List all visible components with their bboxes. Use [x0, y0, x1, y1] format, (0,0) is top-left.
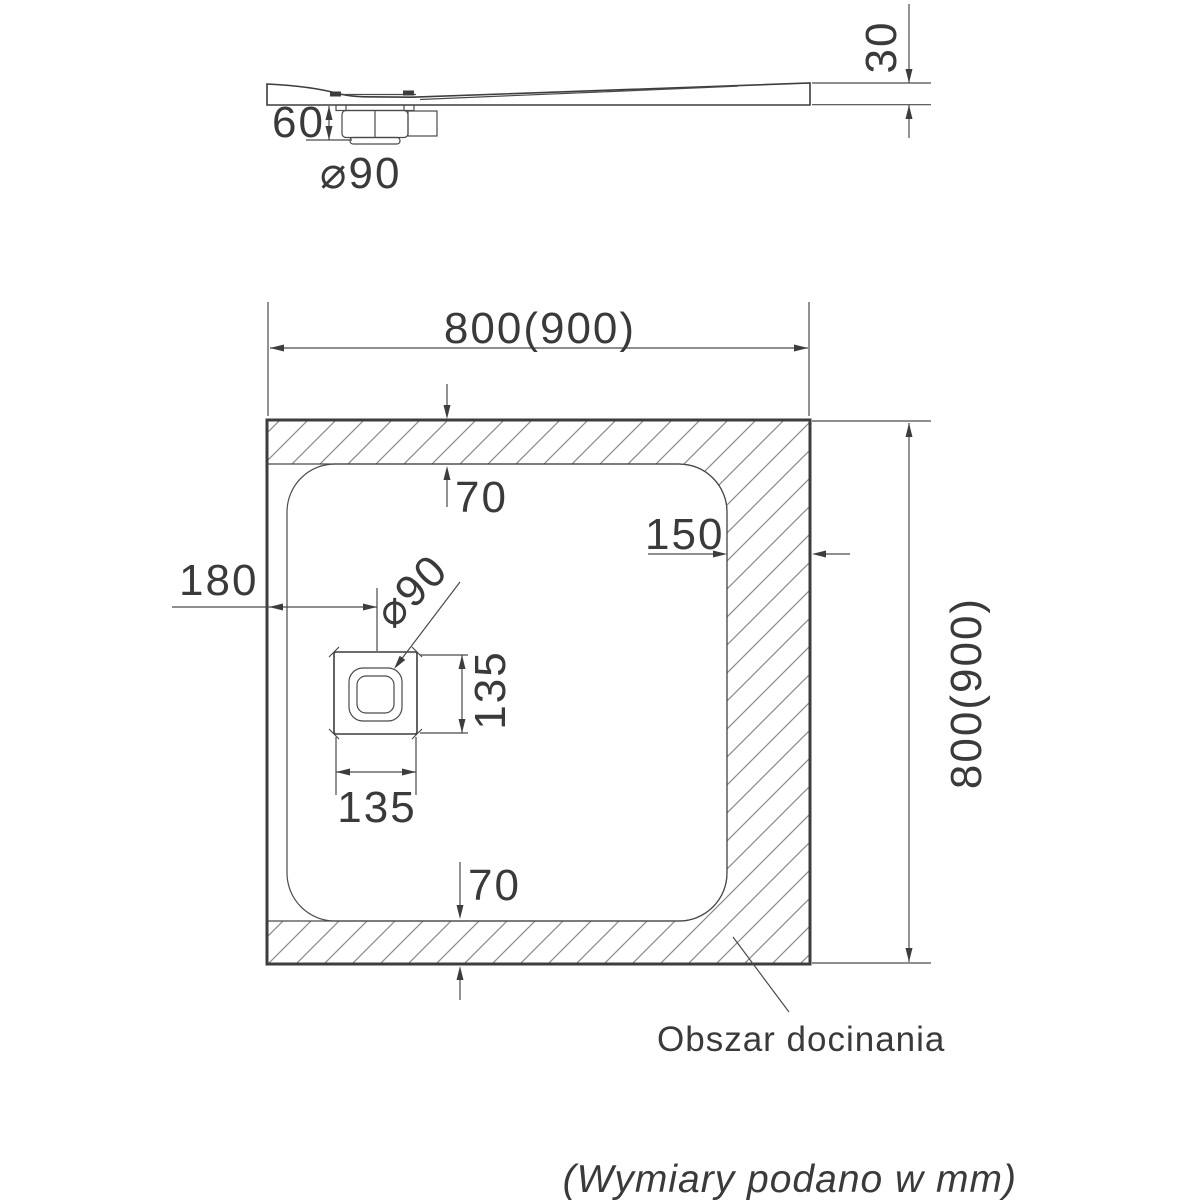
- dim-label-drain-offset: 180: [179, 556, 258, 605]
- dim-label-width: 800(900): [444, 304, 636, 353]
- drain-plan: [329, 647, 422, 739]
- units-note: (Wymiary podano w mm): [563, 1158, 1017, 1200]
- plan-view: 800(900) 800(900) 70 150: [172, 302, 991, 1059]
- dim-drain-offset-180: 180: [172, 556, 377, 651]
- dim-thickness-30: 30: [812, 4, 931, 138]
- dim-label-drain-width: 135: [337, 783, 416, 832]
- dim-label-drain-diameter-side: ⌀90: [320, 149, 401, 198]
- dim-label-bottom-offset: 70: [468, 861, 521, 910]
- technical-drawing-page: 30 60 ⌀90: [0, 0, 1200, 1200]
- dim-drain-height-135: 135: [420, 650, 515, 733]
- dim-width-800: 800(900): [268, 302, 809, 416]
- dim-height-800: 800(900): [812, 421, 991, 963]
- trim-area-label: Obszar docinania: [657, 1020, 945, 1059]
- dim-label-height: 800(900): [942, 597, 991, 789]
- drain-trap-side: [336, 105, 437, 144]
- dim-label-30: 30: [857, 21, 906, 74]
- dim-drain-width-135: 135: [336, 737, 417, 832]
- dim-drain-diameter-plan: ⌀90: [365, 545, 460, 669]
- drawing-svg: 30 60 ⌀90: [0, 0, 1200, 1200]
- tray-floor-slope-line: [420, 86, 738, 99]
- drain-flange-side: [330, 91, 416, 97]
- dim-label-drain-height: 135: [466, 650, 515, 729]
- dim-label-top-offset: 70: [455, 473, 508, 522]
- dim-label-right-offset: 150: [645, 510, 724, 559]
- side-view: 30 60 ⌀90: [267, 4, 931, 198]
- dim-label-60: 60: [272, 98, 325, 147]
- dim-label-drain-diameter-plan: ⌀90: [365, 545, 457, 637]
